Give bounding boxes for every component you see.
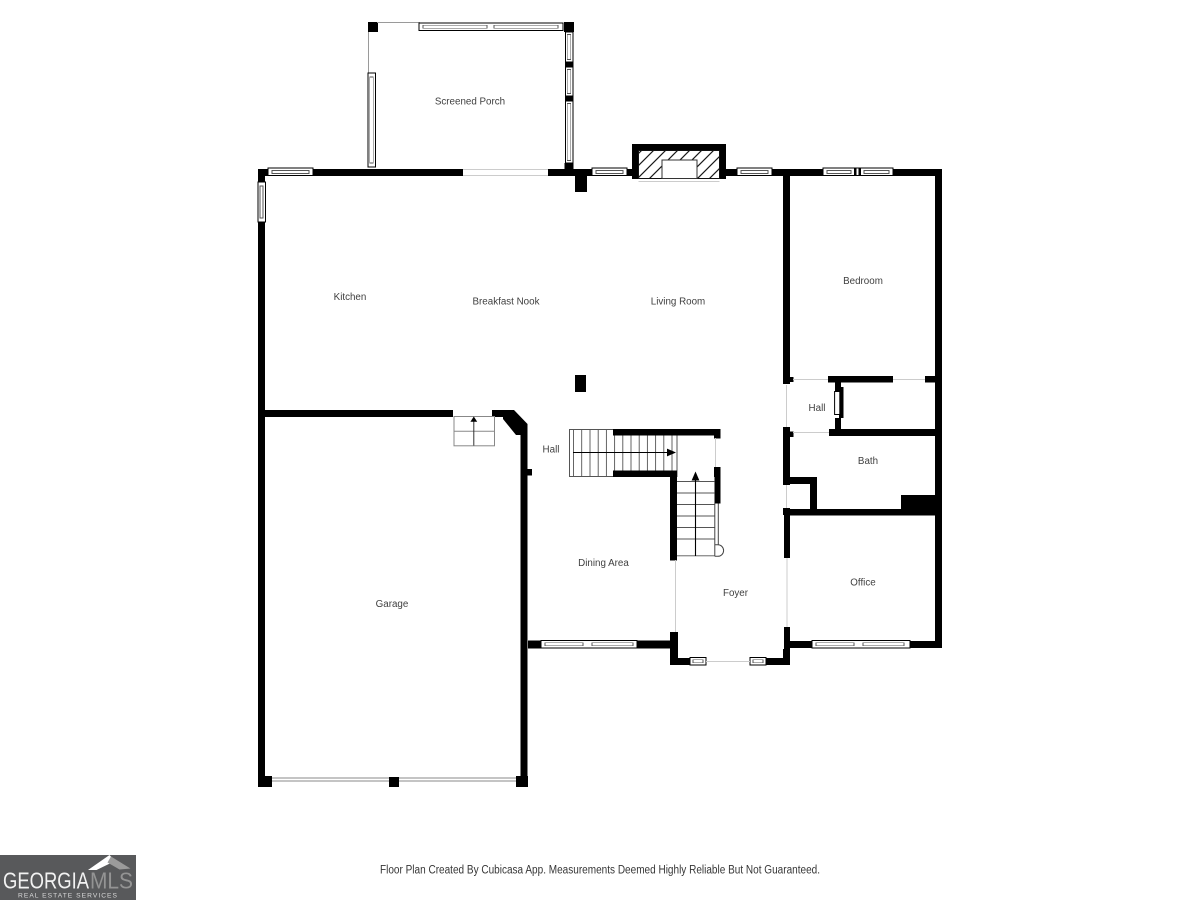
svg-text:Bedroom: Bedroom bbox=[843, 276, 883, 287]
svg-text:Dining Area: Dining Area bbox=[578, 558, 629, 569]
svg-text:Bath: Bath bbox=[858, 456, 878, 467]
svg-text:GEORGIA: GEORGIA bbox=[3, 868, 89, 894]
svg-text:Living Room: Living Room bbox=[651, 297, 705, 308]
svg-text:Kitchen: Kitchen bbox=[334, 292, 367, 303]
svg-text:Hall: Hall bbox=[543, 445, 560, 456]
svg-text:Office: Office bbox=[850, 578, 876, 589]
svg-text:Garage: Garage bbox=[376, 599, 409, 610]
svg-text:Breakfast Nook: Breakfast Nook bbox=[473, 297, 540, 308]
svg-text:MLS: MLS bbox=[90, 868, 133, 894]
svg-text:Screened Porch: Screened Porch bbox=[435, 97, 505, 108]
svg-text:Floor Plan Created By Cubicasa: Floor Plan Created By Cubicasa App. Meas… bbox=[380, 865, 820, 877]
svg-text:REAL ESTATE SERVICES: REAL ESTATE SERVICES bbox=[18, 893, 118, 900]
svg-text:Foyer: Foyer bbox=[723, 588, 749, 599]
svg-text:Hall: Hall bbox=[809, 403, 826, 414]
